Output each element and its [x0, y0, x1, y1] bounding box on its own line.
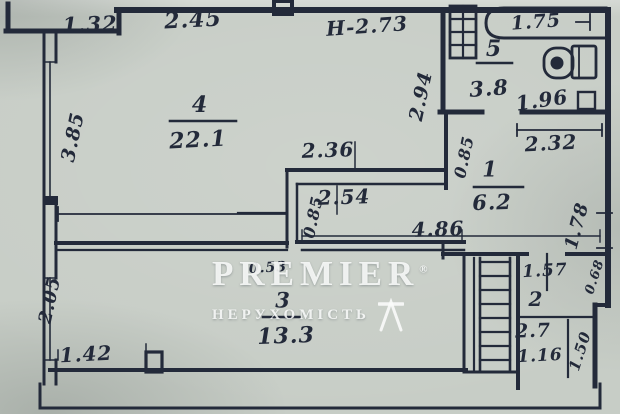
watermark-brand: PREMIER [212, 254, 419, 293]
vent-shaft-2-icon [480, 258, 510, 372]
scanned-floor-plan: 1.322.45Н-2.731.7553.81.962.943.85422.12… [0, 0, 620, 414]
floor-plan-drawing [0, 0, 620, 414]
watermark-brand-row: PREMIER® [212, 256, 412, 291]
watermark-logo-icon [378, 298, 404, 332]
watermark-subtitle-row: НЕРУХОМІСТЬ [212, 298, 412, 332]
registered-mark-icon: ® [419, 263, 427, 275]
sink-icon [578, 92, 595, 109]
watermark: PREMIER® НЕРУХОМІСТЬ [212, 256, 412, 332]
vent-shaft-icon [450, 6, 476, 58]
toilet-icon [544, 46, 596, 78]
watermark-subtitle: НЕРУХОМІСТЬ [212, 307, 370, 324]
